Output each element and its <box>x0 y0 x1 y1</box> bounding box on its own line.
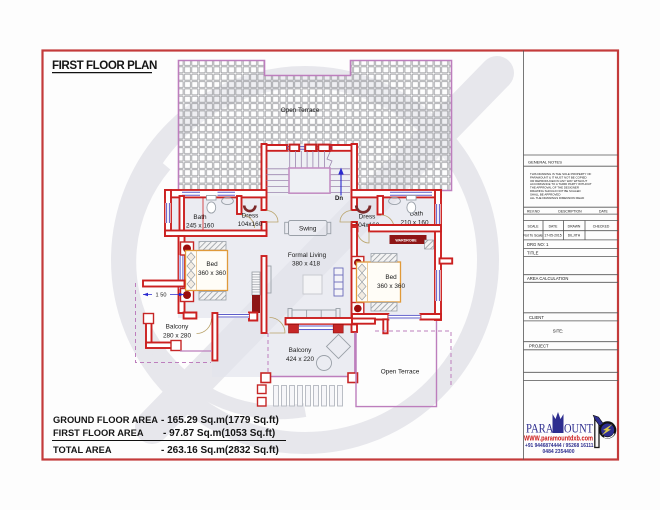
svg-text:FIRST FLOOR AREA: FIRST FLOOR AREA <box>53 428 144 438</box>
svg-text:Dn: Dn <box>335 196 343 202</box>
svg-text:424 x 220: 424 x 220 <box>286 356 315 363</box>
svg-text:245 x 160: 245 x 160 <box>186 223 215 230</box>
svg-text:1 50: 1 50 <box>156 293 167 299</box>
svg-text:Bath: Bath <box>193 214 207 221</box>
svg-text:TOTAL AREA: TOTAL AREA <box>53 445 112 455</box>
svg-text:- 97.87 Sq.m(1053 Sq.ft): - 97.87 Sq.m(1053 Sq.ft) <box>163 428 275 439</box>
svg-text:GENERAL NOTES: GENERAL NOTES <box>528 160 562 165</box>
svg-text:GROUND FLOOR AREA: GROUND FLOOR AREA <box>53 415 158 425</box>
svg-text:280 x 280: 280 x 280 <box>163 333 192 340</box>
svg-text:Bed: Bed <box>385 274 397 281</box>
svg-text:DATE: DATE <box>599 210 609 214</box>
svg-text:CHECKED: CHECKED <box>593 225 610 229</box>
svg-text:17-05-2015: 17-05-2015 <box>544 234 561 238</box>
svg-text:SCALE: SCALE <box>527 225 539 229</box>
svg-text:+91 9446874444 / 95268 16111: +91 9446874444 / 95268 16111 <box>525 443 594 449</box>
svg-text:AREA CALCULATION: AREA CALCULATION <box>527 276 568 281</box>
svg-text:TITLE: TITLE <box>527 251 539 256</box>
svg-text:380 x 418: 380 x 418 <box>292 261 321 268</box>
svg-text:Not To Scale: Not To Scale <box>523 234 542 238</box>
svg-text:Bed: Bed <box>206 261 218 268</box>
svg-text:PROJECT: PROJECT <box>529 344 549 349</box>
svg-text:360 x 360: 360 x 360 <box>377 283 406 290</box>
svg-text:Open Terrace: Open Terrace <box>281 107 320 114</box>
svg-text:- 165.29 Sq.m(1779 Sq.ft): - 165.29 Sq.m(1779 Sq.ft) <box>161 415 279 426</box>
svg-text:CLIENT: CLIENT <box>529 315 544 320</box>
svg-text:DATE: DATE <box>549 225 559 229</box>
svg-text:WARDROBE: WARDROBE <box>395 239 417 243</box>
svg-text:104x160: 104x160 <box>238 221 263 228</box>
svg-text:FIRST FLOOR PLAN: FIRST FLOOR PLAN <box>52 59 157 72</box>
svg-text:WWW.paramountdxb.com: WWW.paramountdxb.com <box>524 434 593 443</box>
svg-text:Balcony: Balcony <box>289 347 313 354</box>
svg-text:DESCRIPTION: DESCRIPTION <box>558 210 582 214</box>
svg-text:360 x 360: 360 x 360 <box>198 270 227 277</box>
svg-text:ALL THE DRAWINGS DIMENSION REA: ALL THE DRAWINGS DIMENSION READ <box>530 196 584 200</box>
svg-text:DRAWN: DRAWN <box>568 225 581 229</box>
svg-text:Open Terrace: Open Terrace <box>381 369 420 376</box>
svg-text:Dress: Dress <box>242 213 259 220</box>
svg-text:Swing: Swing <box>299 226 317 233</box>
svg-text:Dress: Dress <box>359 214 376 221</box>
svg-text:Balcony: Balcony <box>166 324 190 331</box>
svg-text:DRG NO: 1: DRG NO: 1 <box>527 242 549 247</box>
svg-text:DILJITH: DILJITH <box>568 234 581 238</box>
svg-text:0484 2354400: 0484 2354400 <box>543 449 575 455</box>
svg-text:SITE:: SITE: <box>553 329 563 334</box>
svg-text:REV.NO: REV.NO <box>527 210 540 214</box>
svg-text:Formal Living: Formal Living <box>288 252 327 259</box>
svg-text:- 263.16 Sq.m(2832 Sq.ft): - 263.16 Sq.m(2832 Sq.ft) <box>161 445 279 456</box>
